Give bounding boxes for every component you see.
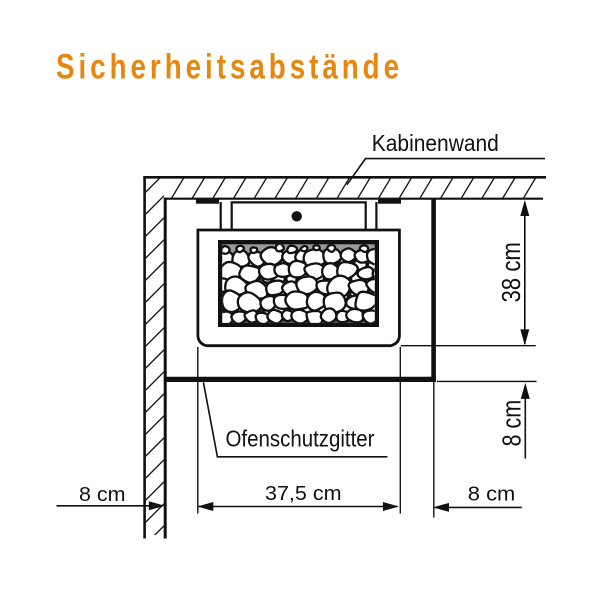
svg-text:8 cm: 8 cm xyxy=(79,483,126,506)
svg-text:38 cm: 38 cm xyxy=(498,242,526,303)
svg-text:Sicherheitsabstände: Sicherheitsabstände xyxy=(56,48,403,87)
svg-text:8 cm: 8 cm xyxy=(468,482,516,505)
svg-text:Kabinenwand: Kabinenwand xyxy=(372,130,499,156)
svg-text:8 cm: 8 cm xyxy=(499,400,527,447)
svg-text:Ofenschutzgitter: Ofenschutzgitter xyxy=(226,426,375,452)
svg-text:37,5 cm: 37,5 cm xyxy=(265,482,342,505)
